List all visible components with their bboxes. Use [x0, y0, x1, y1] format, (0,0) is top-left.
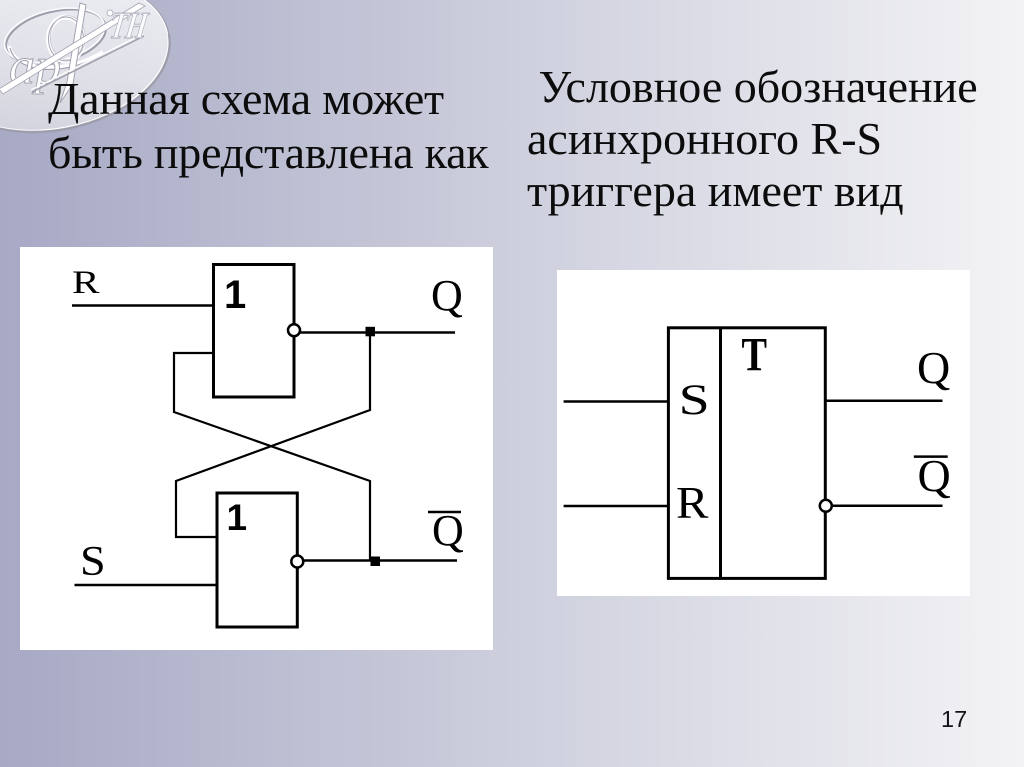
- svg-text:S: S: [679, 376, 710, 423]
- svg-text:Q: Q: [432, 506, 464, 555]
- svg-text:R: R: [72, 265, 100, 301]
- svg-text:Q: Q: [431, 271, 463, 320]
- svg-text:R: R: [676, 479, 709, 529]
- svg-text:1: 1: [227, 497, 248, 538]
- svg-text:1: 1: [224, 273, 246, 317]
- svg-text:S: S: [80, 538, 106, 585]
- svg-text:T: T: [742, 329, 768, 382]
- svg-text:Q: Q: [917, 342, 950, 393]
- svg-text:Q: Q: [918, 450, 951, 501]
